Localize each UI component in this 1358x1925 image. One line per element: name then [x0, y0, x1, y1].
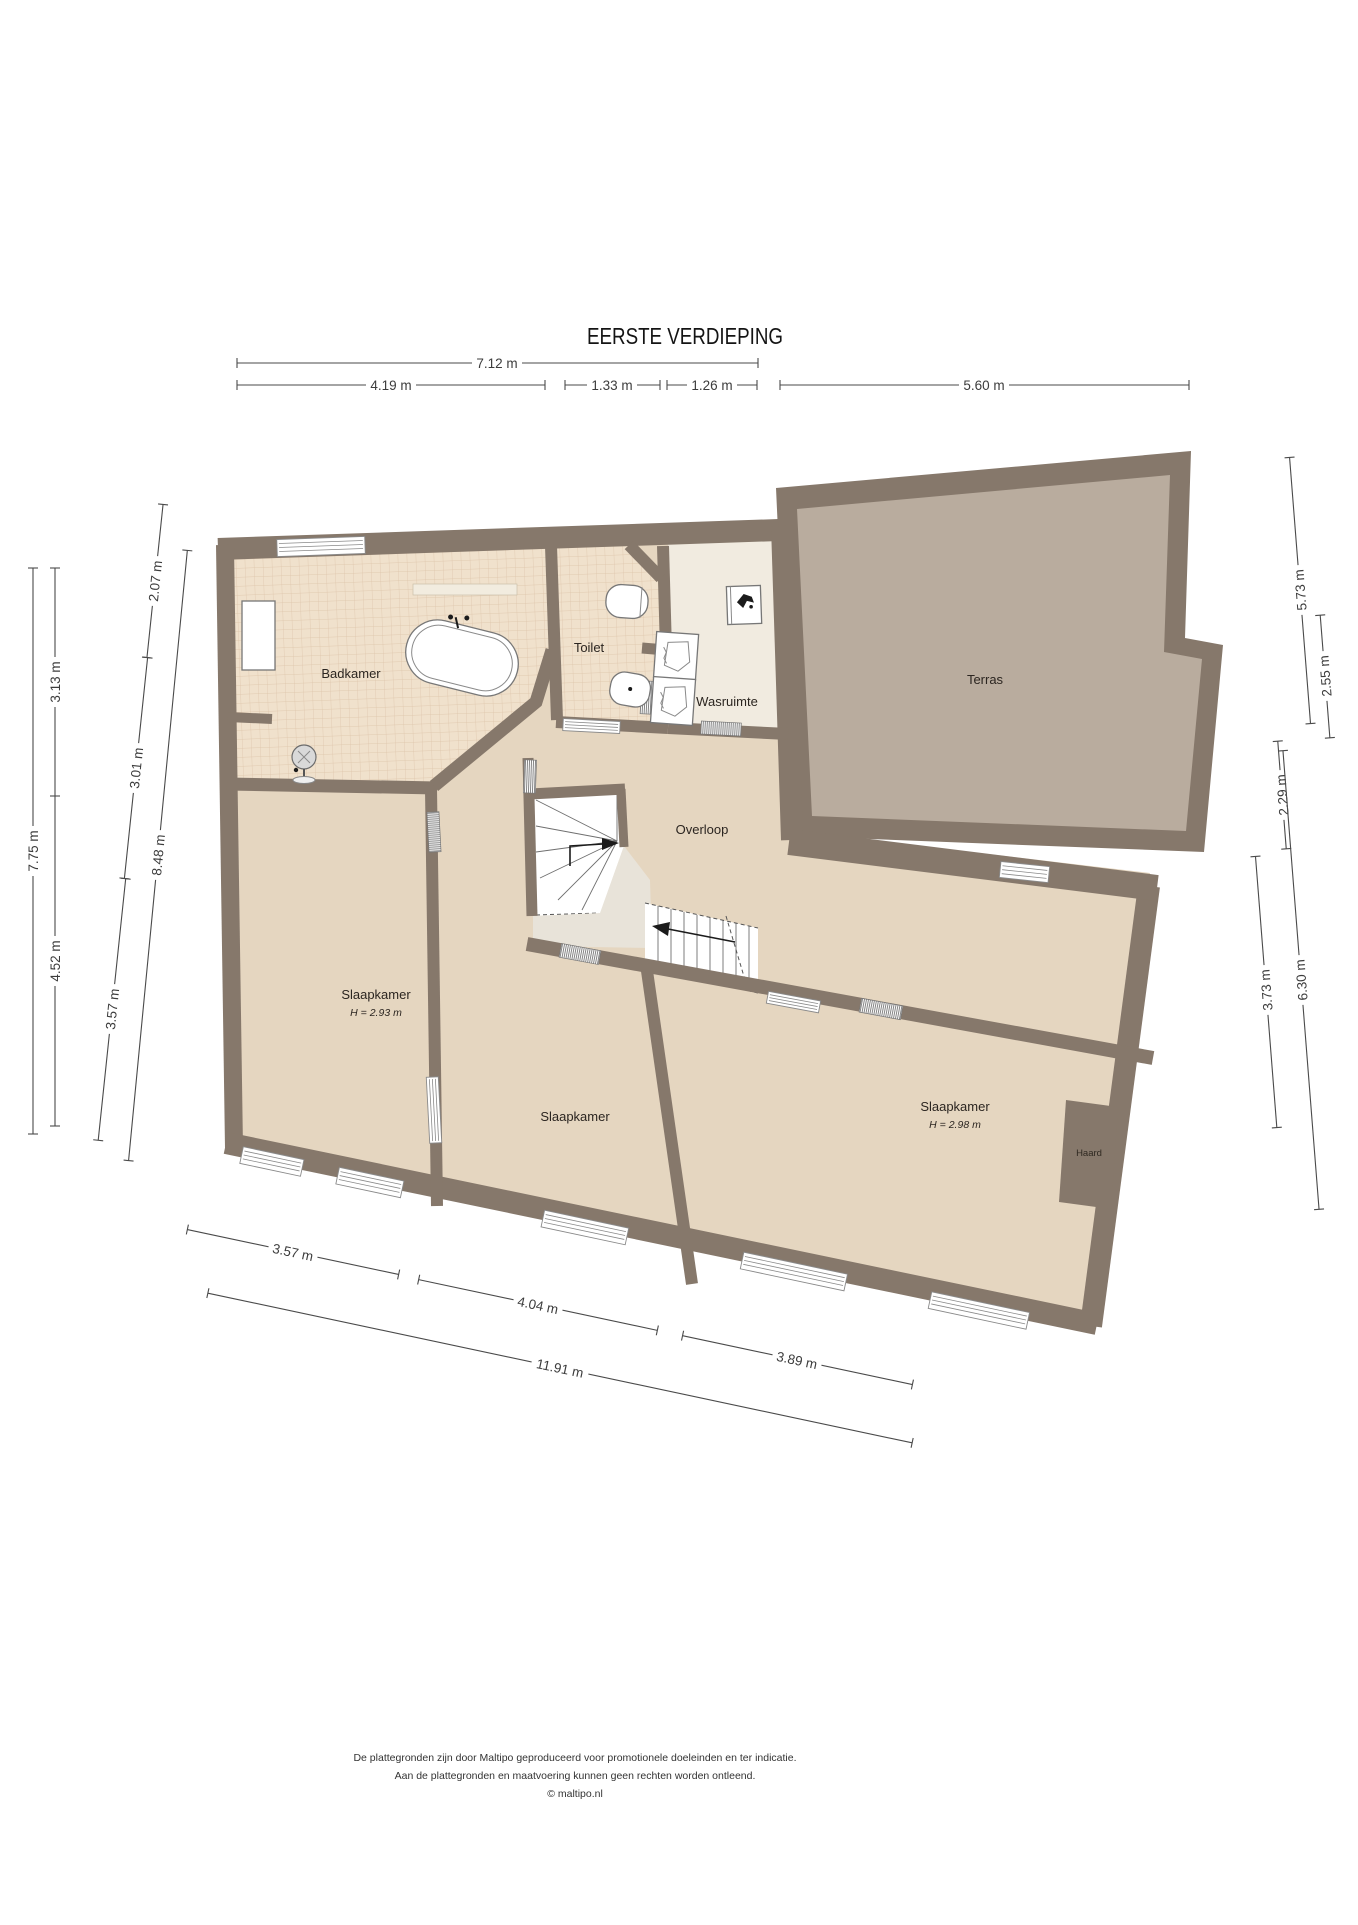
dim-top-seg1: 4.19 m	[237, 377, 545, 393]
room-height-right: H = 2.98 m	[929, 1119, 981, 1131]
svg-text:4.04 m: 4.04 m	[516, 1294, 559, 1317]
svg-text:7.12 m: 7.12 m	[476, 356, 517, 371]
dim-left-wall-lower: 3.57 m	[90, 878, 133, 1141]
dim-right-hall: 2.29 m	[1270, 741, 1294, 850]
svg-text:3.57 m: 3.57 m	[103, 988, 122, 1031]
svg-text:11.91 m: 11.91 m	[535, 1356, 585, 1381]
room-height-left: H = 2.93 m	[350, 1007, 402, 1019]
room-label-slaapkamer-left: Slaapkamer	[341, 987, 411, 1002]
room-label-toilet: Toilet	[574, 640, 605, 655]
terrace-structure	[776, 451, 1223, 852]
svg-text:8.48 m: 8.48 m	[149, 834, 168, 877]
dim-bottom-seg2: 4.04 m	[417, 1272, 659, 1338]
terrace-floor	[797, 475, 1202, 831]
dim-left-wall-upper: 2.07 m	[139, 504, 171, 659]
dim-left-upper: 3.13 m	[47, 568, 63, 796]
dryer-machine	[650, 677, 695, 726]
svg-text:3.73 m: 3.73 m	[1257, 969, 1275, 1011]
floor-plan-page: EERSTE VERDIEPING	[0, 0, 1358, 1920]
dim-left-total: 7.75 m	[25, 568, 41, 1134]
dim-right-terrace: 5.73 m	[1282, 457, 1319, 724]
room-label-badkamer: Badkamer	[321, 666, 381, 681]
shower-head	[292, 745, 316, 784]
toilet-bowl	[605, 584, 649, 620]
dim-top-terrace: 5.60 m	[780, 377, 1189, 393]
dimensions-left: 7.75 m 3.13 m 4.52 m 2.07 m 3.01 m 3.57 …	[25, 504, 195, 1162]
door	[523, 760, 536, 793]
dim-top-seg2: 1.33 m	[565, 377, 660, 393]
dim-left-wall-total: 8.48 m	[121, 550, 196, 1162]
dim-top-total: 7.12 m	[237, 355, 758, 371]
svg-text:4.52 m: 4.52 m	[48, 940, 63, 981]
room-label-slaapkamer-middle: Slaapkamer	[540, 1109, 610, 1124]
bathroom-shelf	[413, 584, 517, 595]
footer-disclaimer: De plattegronden zijn door Maltipo gepro…	[353, 1752, 796, 1800]
bathroom-cabinet	[242, 601, 275, 670]
svg-text:4.19 m: 4.19 m	[370, 378, 411, 393]
svg-text:2.29 m: 2.29 m	[1273, 774, 1291, 816]
dimensions-top: 7.12 m 4.19 m 1.33 m 1.26 m 5.60 m	[237, 355, 1189, 393]
washing-machine	[654, 632, 699, 681]
svg-text:2.55 m: 2.55 m	[1316, 655, 1334, 697]
footer-line-3: © maltipo.nl	[547, 1788, 603, 1800]
room-label-wasruimte: Wasruimte	[696, 694, 758, 709]
sink-unit	[726, 585, 761, 624]
dim-bottom-seg1: 3.57 m	[186, 1222, 401, 1283]
svg-text:5.60 m: 5.60 m	[963, 378, 1004, 393]
footer-line-2: Aan de plattegronden en maatvoering kunn…	[395, 1770, 756, 1782]
window	[563, 719, 621, 734]
room-label-terras: Terras	[967, 672, 1004, 687]
window	[277, 536, 366, 556]
room-label-haard: Haard	[1076, 1148, 1102, 1159]
svg-text:7.75 m: 7.75 m	[26, 830, 41, 871]
dim-right-terrace-lower: 2.55 m	[1312, 615, 1338, 739]
svg-text:6.30 m: 6.30 m	[1292, 959, 1310, 1001]
floor-plan-canvas: EERSTE VERDIEPING	[0, 0, 1358, 1920]
page-title: EERSTE VERDIEPING	[587, 323, 783, 349]
svg-text:1.33 m: 1.33 m	[591, 378, 632, 393]
svg-text:2.07 m: 2.07 m	[146, 560, 165, 603]
svg-text:3.01 m: 3.01 m	[127, 747, 146, 790]
dim-left-lower: 4.52 m	[47, 796, 63, 1126]
svg-text:3.57 m: 3.57 m	[271, 1241, 314, 1264]
door	[701, 721, 742, 736]
dim-bottom-seg3: 3.89 m	[681, 1328, 914, 1393]
dim-right-bedroom: 3.73 m	[1248, 856, 1285, 1128]
svg-text:5.73 m: 5.73 m	[1291, 569, 1309, 611]
door	[427, 812, 441, 853]
dimensions-right: 5.73 m 2.55 m 2.29 m 3.73 m 6.30 m	[1248, 457, 1338, 1210]
dim-top-seg3: 1.26 m	[667, 377, 757, 393]
footer-line-1: De plattegronden zijn door Maltipo gepro…	[353, 1752, 796, 1764]
dim-left-wall-mid: 3.01 m	[116, 657, 155, 879]
svg-text:1.26 m: 1.26 m	[691, 378, 732, 393]
svg-text:3.89 m: 3.89 m	[775, 1349, 818, 1372]
svg-text:3.13 m: 3.13 m	[48, 661, 63, 702]
room-label-overloop: Overloop	[676, 822, 729, 837]
room-label-slaapkamer-right: Slaapkamer	[920, 1099, 990, 1114]
